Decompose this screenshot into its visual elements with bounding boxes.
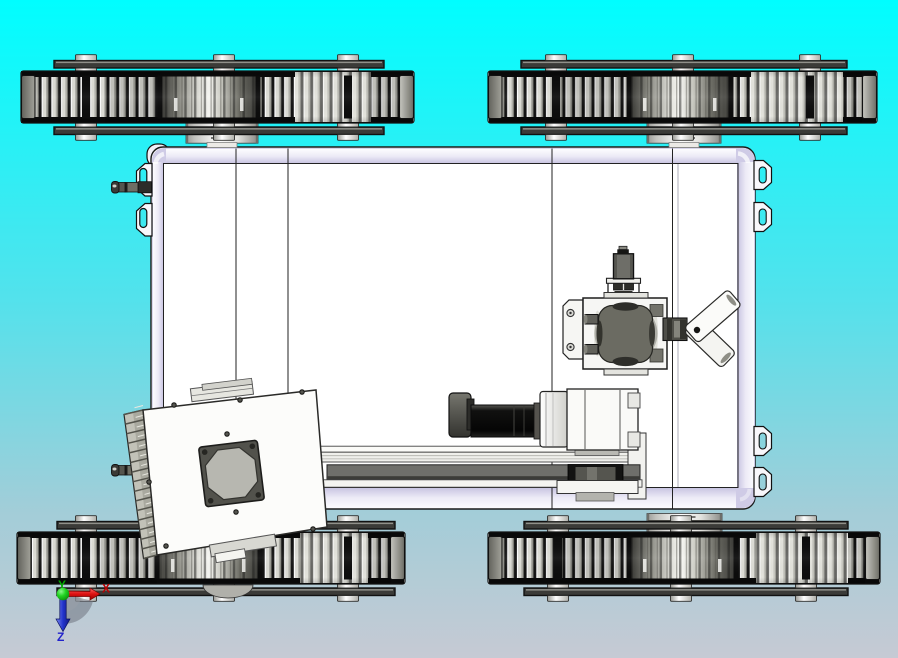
- svg-text:Z: Z: [57, 630, 64, 644]
- svg-text:X: X: [102, 582, 110, 596]
